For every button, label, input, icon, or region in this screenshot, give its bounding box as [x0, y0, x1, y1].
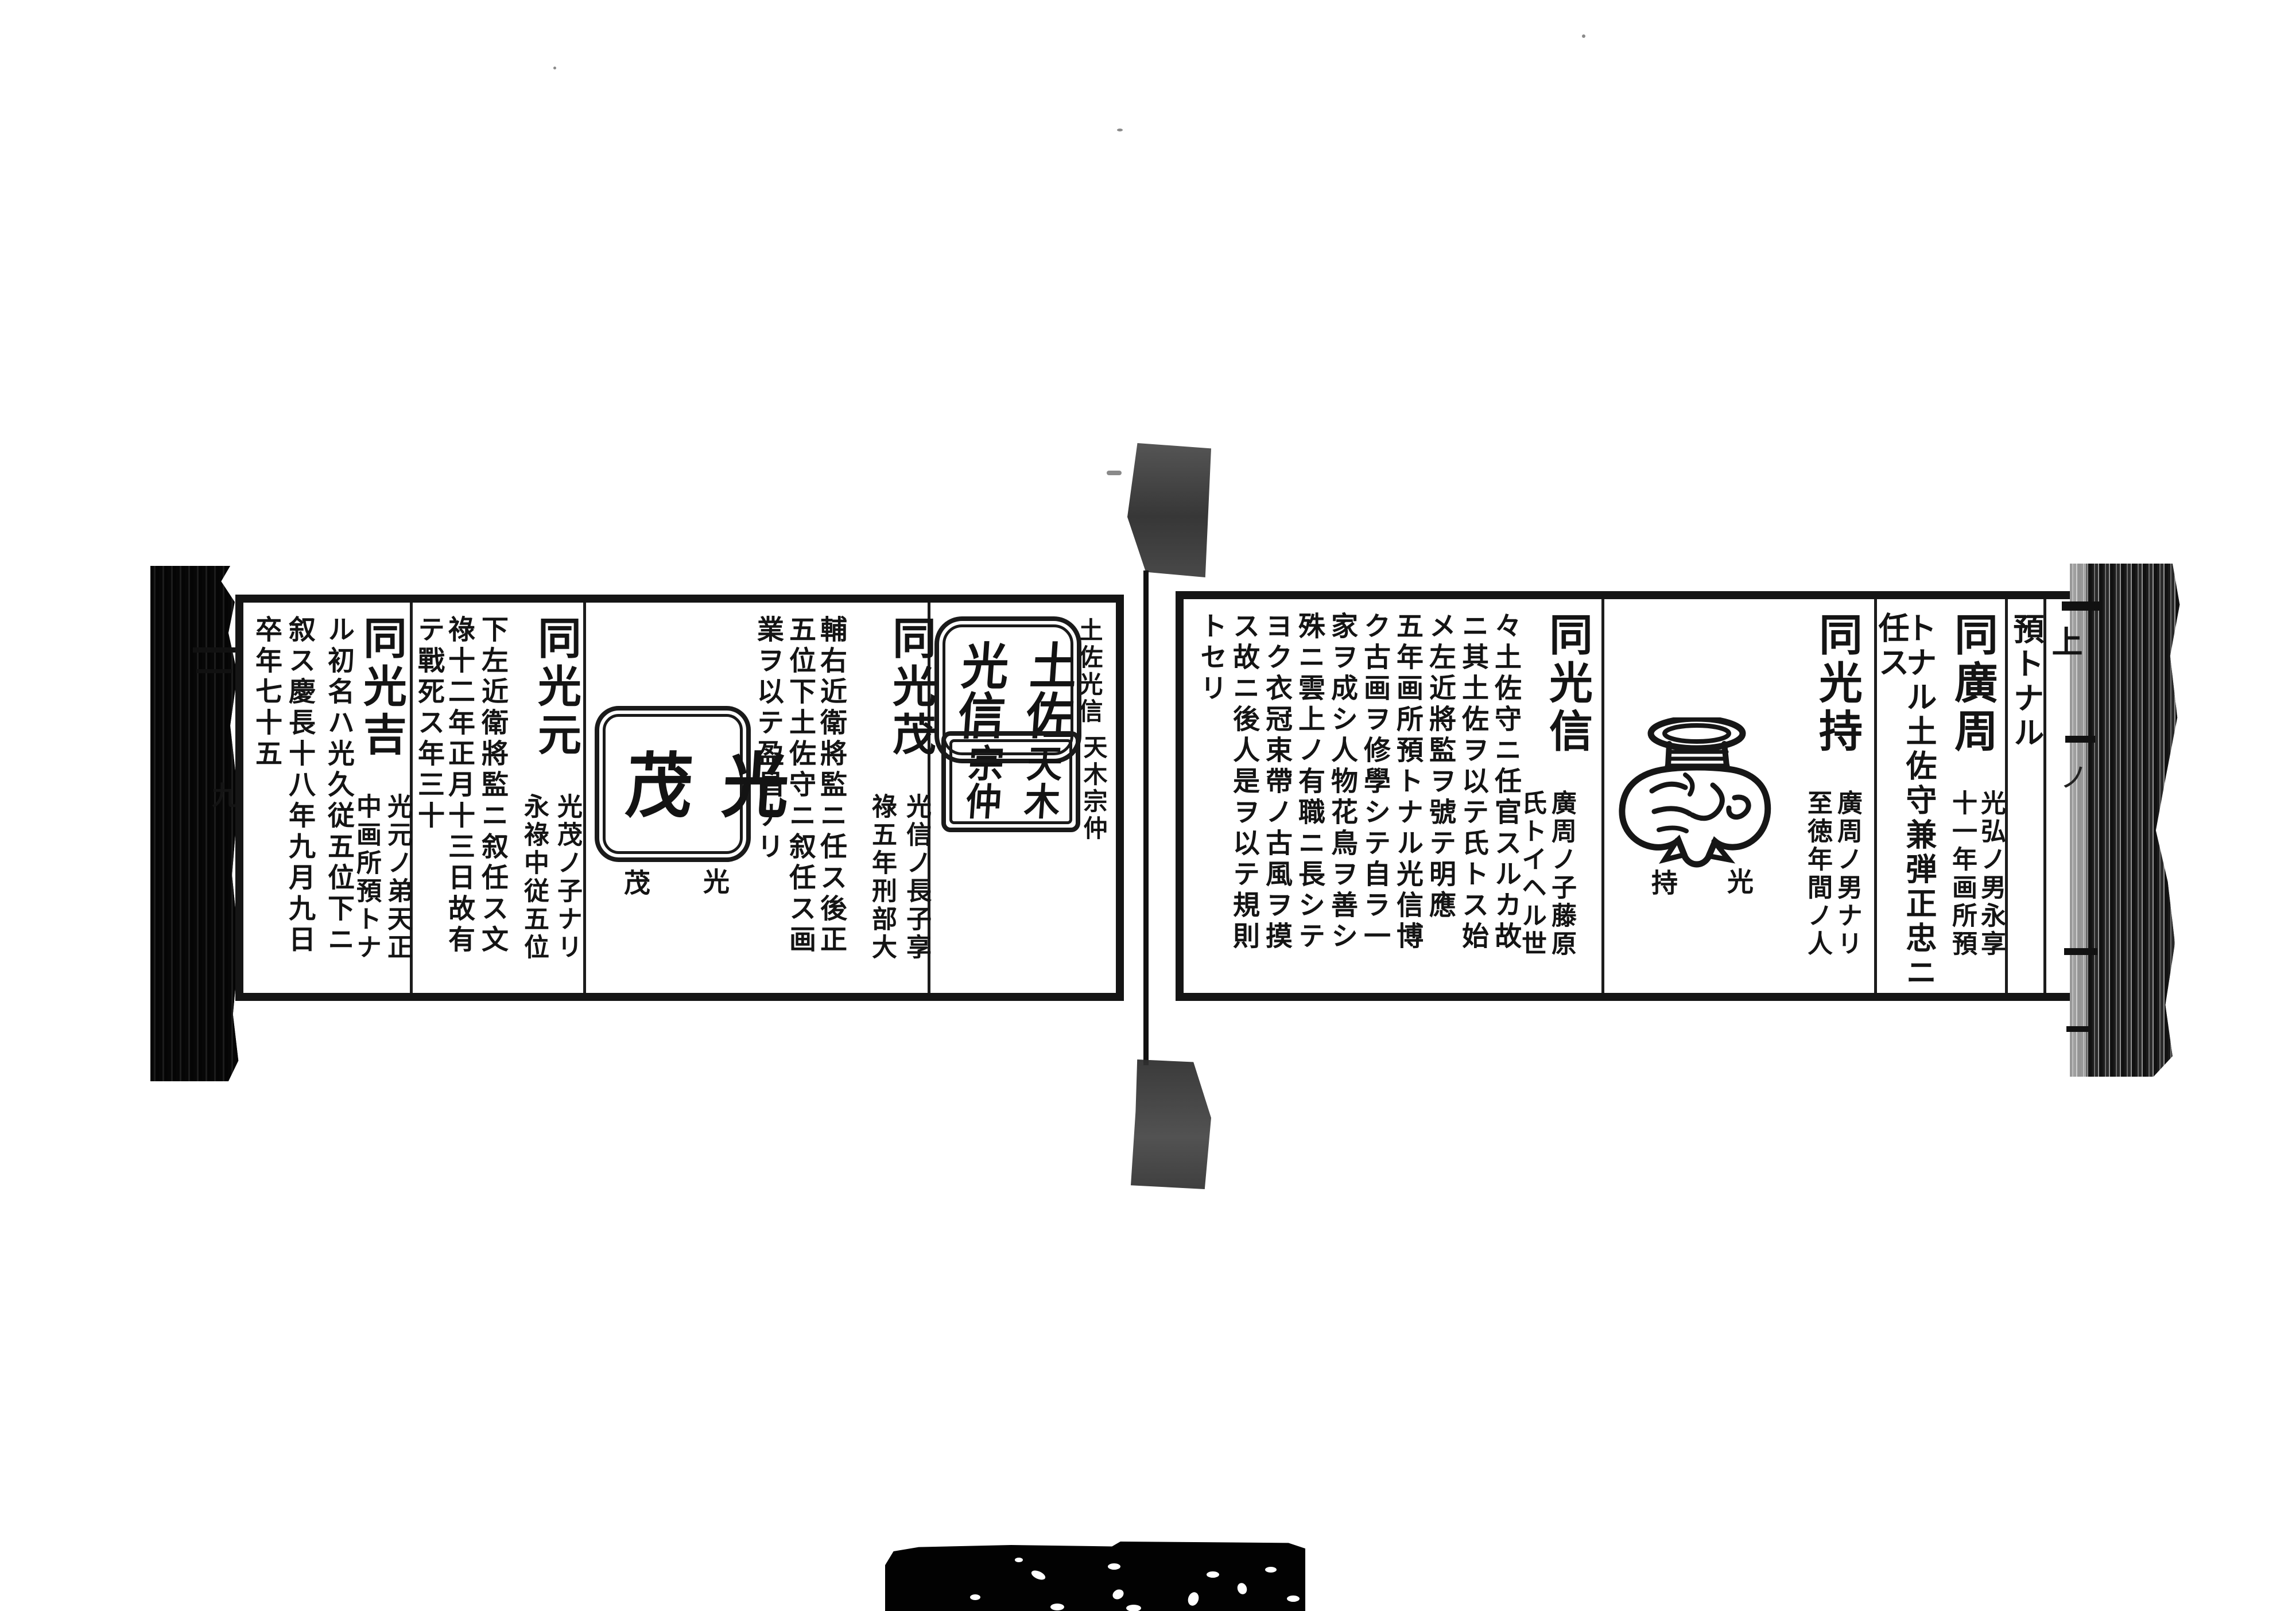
entry-note: 廣周ノ子藤原 — [1549, 790, 1574, 958]
entry-note: 氏トイヘル世 — [1519, 790, 1544, 958]
entry-header-mitsunobu: 同光信 — [1545, 612, 1589, 756]
seal-text: 宗仲 — [953, 744, 1010, 819]
seal-label-amaki-munenaka: 天木宗仲 — [1081, 735, 1106, 843]
blob-speck — [1236, 1582, 1248, 1596]
binding-smudge-top — [1127, 443, 1211, 577]
entry-note: 永祿中従五位 — [521, 793, 546, 962]
seal-text: 天木 — [1011, 744, 1068, 819]
commentary-column: ク古画ヲ修學シテ自ラ一 — [1361, 612, 1388, 953]
commentary-column: 家ヲ成シ人物花鳥ヲ善シ — [1328, 612, 1355, 953]
entry-header-mitsumoto: 同光元 — [534, 615, 577, 760]
blob-speck — [1207, 1571, 1219, 1578]
seal-mitsumochi-jar — [1616, 717, 1774, 872]
entry-note: 廣周ノ男ナリ — [1835, 790, 1860, 958]
blob-speck — [970, 1594, 980, 1600]
seal-amaki-munenaka: 天木 宗仲 — [941, 731, 1080, 832]
blob-speck — [1030, 1569, 1046, 1581]
seal-text: 土佐 — [1010, 640, 1085, 740]
commentary-column: 祿十二年正月十三日故有 — [445, 615, 472, 956]
commentary-column: ニ其土佐ヲ以テ氏トス始 — [1459, 612, 1486, 953]
blob-speck — [1108, 1563, 1120, 1570]
commentary-column: ヨク衣冠束帶ノ古風ヲ摸 — [1263, 612, 1290, 953]
seal-text: 光 — [700, 749, 801, 820]
entry-note: 祿五年刑部大 — [869, 793, 894, 962]
right-edge-mark — [2062, 601, 2102, 611]
commentary-column: 輔右近衛將監ニ任ス後正 — [817, 615, 844, 956]
entry-note: 中画所預トナ — [354, 793, 379, 962]
blob-speck — [1015, 1558, 1023, 1562]
blob-speck — [1126, 1605, 1141, 1611]
commentary-column: 卒年七十五 — [253, 615, 280, 770]
entry-note: 光弘ノ男永享 — [1978, 790, 2003, 958]
blob-speck — [1186, 1591, 1201, 1607]
fold-line — [1143, 570, 1149, 1065]
entry-header-mitsuyoshi: 同光吉 — [359, 615, 403, 760]
seal-text: 茂 — [603, 749, 705, 820]
right-edge-mark — [2065, 736, 2095, 743]
commentary-column: ル初名ハ光久従五位下ニ — [325, 615, 352, 956]
entry-header-mitsushige: 同光茂 — [889, 615, 932, 760]
entry-note: 光信ノ長子享 — [903, 793, 929, 962]
scan-speck — [1107, 471, 1122, 475]
seal-mitsushige: 光 茂 — [595, 706, 751, 862]
commentary-column: 下左近衛將監ニ叙任ス文 — [479, 615, 506, 956]
left-page-frame: 土佐光信 土佐 光信 天木宗仲 天木 宗仲 同光茂 光信ノ長子享 祿五年刑部大 … — [235, 595, 1124, 1001]
right-edge-mark — [2066, 1026, 2092, 1032]
right-edge-stroke-mark: ノ — [2057, 762, 2086, 791]
entry-note: 至徳年間ノ人 — [1805, 790, 1830, 958]
blob-speck — [1050, 1604, 1064, 1610]
scan-speck — [1582, 34, 1585, 38]
left-page-edge-shadow — [150, 566, 241, 1081]
commentary-column: 々土佐守ニ任官スルカ故 — [1492, 612, 1519, 953]
entry-note: 光茂ノ子ナリ — [554, 793, 580, 962]
left-edge-page-number: 九 — [210, 782, 236, 808]
blob-speck — [1265, 1567, 1277, 1573]
commentary-column: 業ヲ以テ盈昌ナリ — [754, 615, 781, 863]
left-edge-mark — [193, 647, 241, 653]
right-edge-mark — [2064, 948, 2097, 955]
commentary-column: 五年画所預トナル光信博 — [1394, 612, 1421, 953]
right-page-edge-fan — [2070, 564, 2189, 1077]
blob-speck — [1111, 1587, 1125, 1601]
right-page-frame: 預トナル 同廣周 光弘ノ男永享 十一年画所預 トナル土佐守兼弾正忠ニ 任ス 同光… — [1176, 591, 2080, 1001]
entry-note: 十一年画所預 — [1949, 790, 1975, 958]
seal-caption: 茂 — [622, 869, 649, 895]
scanned-book-spread: 九 土佐光信 土佐 光信 天木宗仲 天木 宗仲 同光茂 光信ノ長子享 祿五年刑部… — [0, 0, 2296, 1611]
commentary-column: ス故ニ後人是ヲ以テ規則 — [1230, 612, 1257, 953]
entry-header-hirochika: 同廣周 — [1950, 612, 1994, 756]
left-edge-mark — [196, 669, 232, 673]
scan-speck — [553, 67, 556, 69]
binding-smudge-bottom — [1131, 1059, 1211, 1189]
scanner-edge-blob — [885, 1542, 1305, 1611]
seal-text: 光信 — [942, 640, 1017, 740]
commentary-column: メ左近將監ヲ號テ明應 — [1426, 612, 1453, 922]
entry-note: 光元ノ弟天正 — [385, 793, 410, 962]
carryover-column: 預トナル — [2011, 613, 2042, 751]
blob-speck — [1287, 1596, 1300, 1602]
seal-caption: 光 — [1725, 868, 1752, 894]
column-rule — [1601, 599, 1604, 993]
commentary-column: 殊ニ雲上ノ有職ニ長シテ — [1296, 612, 1322, 953]
continuation-column: 任ス — [1876, 612, 1907, 681]
commentary-column: 叙ス慶長十八年九月九日 — [286, 615, 313, 956]
scan-speck — [1117, 129, 1123, 131]
entry-header-mitsumochi: 同光持 — [1815, 612, 1859, 756]
seal-caption: 光 — [701, 868, 728, 894]
commentary-column: テ戰死ス年三十 — [415, 615, 442, 832]
column-rule — [583, 603, 586, 993]
right-edge-volume-marker: 上 — [2049, 626, 2080, 657]
commentary-column: トセリ — [1197, 612, 1224, 705]
seal-caption: 持 — [1650, 869, 1676, 895]
